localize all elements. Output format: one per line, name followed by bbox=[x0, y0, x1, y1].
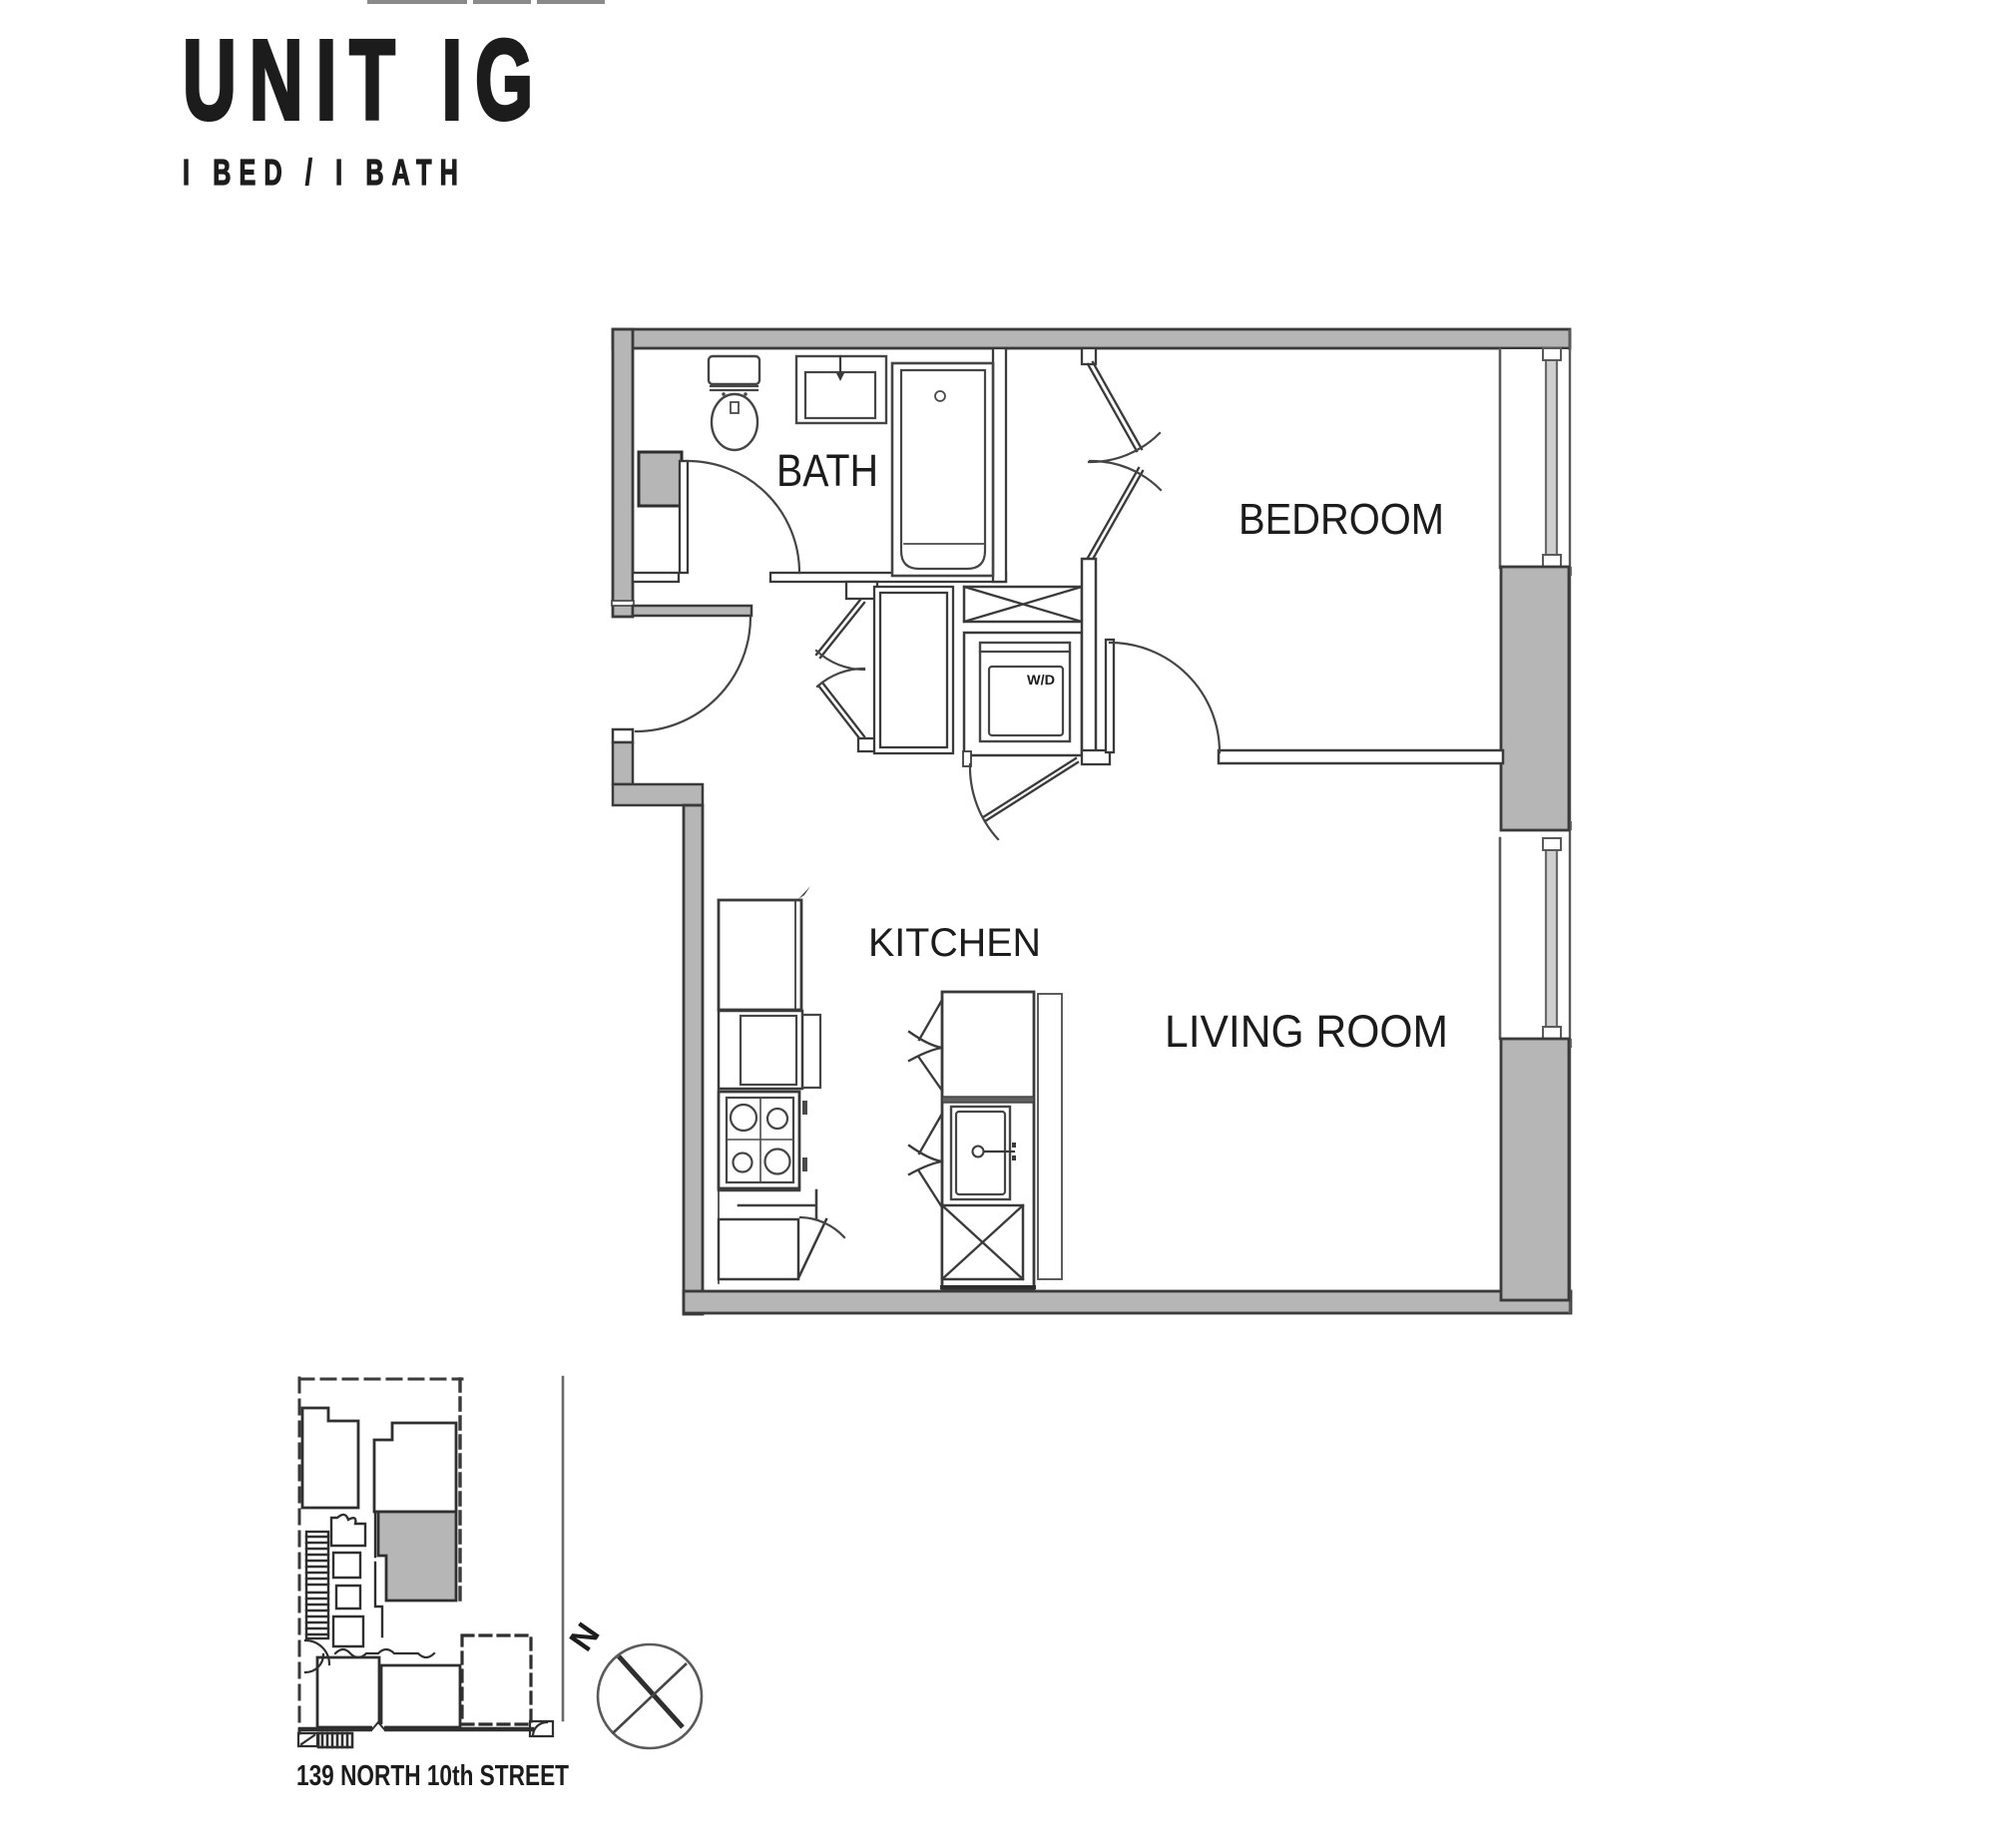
svg-text:I BED / I BATH: I BED / I BATH bbox=[183, 153, 458, 194]
svg-text:UNIT IG: UNIT IG bbox=[183, 17, 533, 143]
svg-text:LIVING ROOM: LIVING ROOM bbox=[1165, 1006, 1448, 1057]
svg-text:W/D: W/D bbox=[1027, 672, 1055, 688]
svg-text:139 NORTH 10th STREET: 139 NORTH 10th STREET bbox=[296, 1760, 569, 1792]
svg-text:BEDROOM: BEDROOM bbox=[1239, 495, 1444, 544]
svg-text:BATH: BATH bbox=[776, 445, 878, 496]
svg-text:KITCHEN: KITCHEN bbox=[868, 921, 1041, 965]
